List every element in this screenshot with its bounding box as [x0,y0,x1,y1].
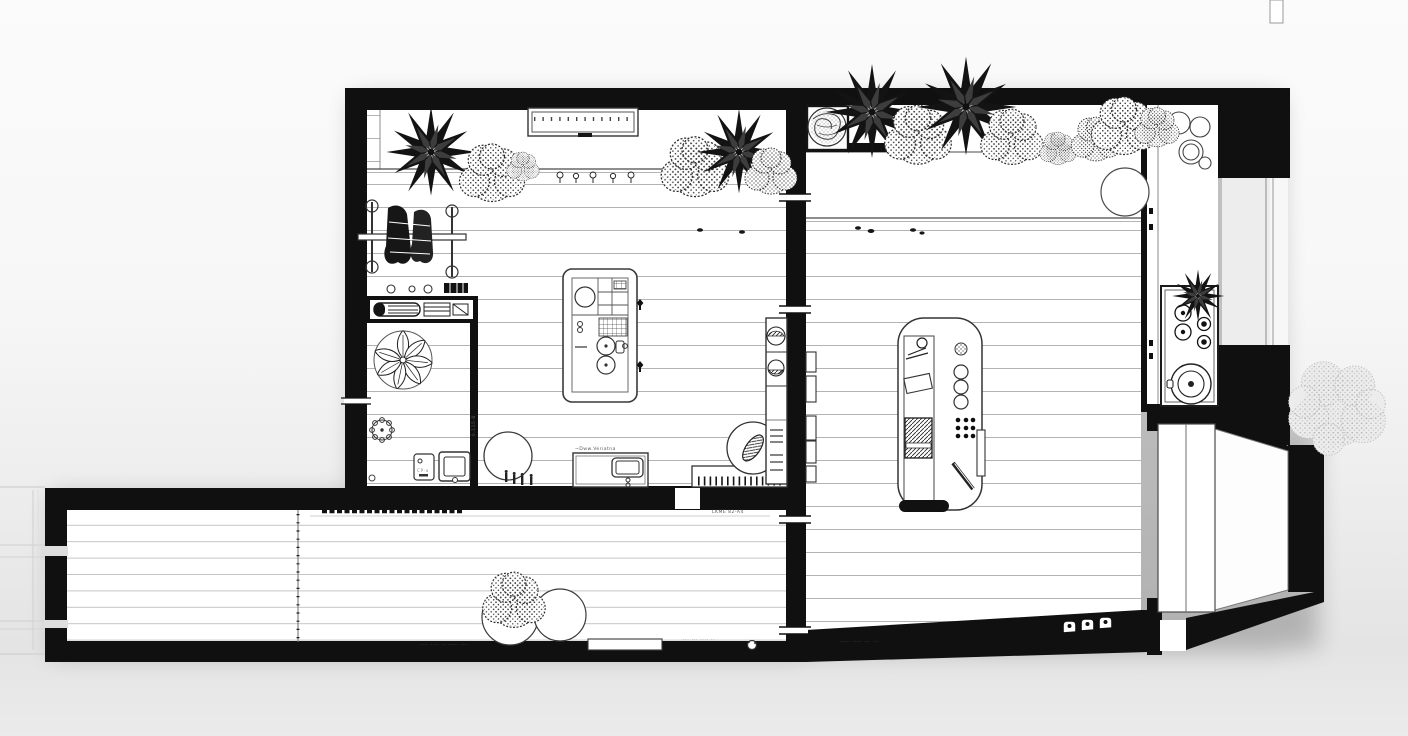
desk-ring [954,395,968,409]
floor-plan-canvas: CP·a [0,0,1408,736]
partition-tick [1149,340,1153,346]
desk-base-bar [899,500,949,512]
rack-crossbar [358,234,466,240]
desk-dot-grid [956,418,976,439]
kitchen-island [563,269,637,402]
desk-chair-tab [977,430,985,476]
plant-debris [919,231,924,234]
plant-debris [868,229,875,233]
vestibule-right-wall [1288,445,1324,592]
bathroom-sink [439,452,470,483]
folded-linens [424,303,468,316]
wall-break-marker [779,194,811,201]
desk-ring [954,380,968,394]
terrace-note-b: ·-- ··- --·· ·- [683,637,715,642]
desk-keyboard [905,418,932,458]
decor-bowl [767,327,785,345]
divider-tag: 0.115-B [471,415,476,436]
panel-label: CP·a [417,468,429,473]
wall-break-marker [779,306,811,313]
round-table [1101,168,1149,216]
plant-debris [855,226,861,230]
terrace-small-pot [748,641,757,650]
middle-wall-lower [786,486,806,662]
entry-vestibule [1158,424,1288,612]
wall-shelves [806,352,816,482]
terrace-note-a: ·--· ---· ·- ··--· --- [420,642,467,647]
tall-cabinet [766,318,787,484]
plant-debris [739,230,745,234]
island-sink-bowl [575,287,595,307]
hanging-clothes [410,210,433,263]
basin-label: ~Dww.Veriatna [575,446,616,452]
site-marker-post [1270,0,1283,23]
partition-tick [1149,353,1153,359]
wall-tag: LKME 82-A4 [712,509,744,515]
desk-ring [954,365,968,379]
floor-plan-svg: CP·a [0,0,1408,736]
terrace-wall-joint [44,546,68,556]
island-grate [599,318,627,336]
wall-break-marker [779,516,811,523]
decor-bowl [768,360,784,376]
open-door-swing [1215,429,1288,610]
terrace-bottom-wall [345,641,786,662]
strip-partition-wall [1141,105,1147,412]
desk-mug [955,343,967,355]
plant-debris [697,228,703,232]
terrace-wall-joint [44,620,68,628]
floors [67,105,1218,643]
work-desk [898,318,985,512]
partition-tick [1149,224,1153,230]
bathroom-right-wall [470,323,478,488]
plant-debris [910,228,916,232]
sink-faucet [1167,380,1173,388]
ac-unit [528,108,638,137]
wall-break-marker [779,627,811,634]
terrace-bench [588,639,662,650]
room-note: ·--·· ---- ·-- ··· [840,639,879,644]
wall-panel: CP·a [414,454,434,480]
partition-tick [1149,208,1153,214]
striped-box [444,283,468,293]
ac-sensor [578,133,592,137]
wall-break-marker [341,398,371,404]
leafy-plant [373,331,432,390]
terrace-floor [67,510,786,643]
entry-door-opening [1160,620,1186,651]
terrace-door-opening [675,488,700,509]
